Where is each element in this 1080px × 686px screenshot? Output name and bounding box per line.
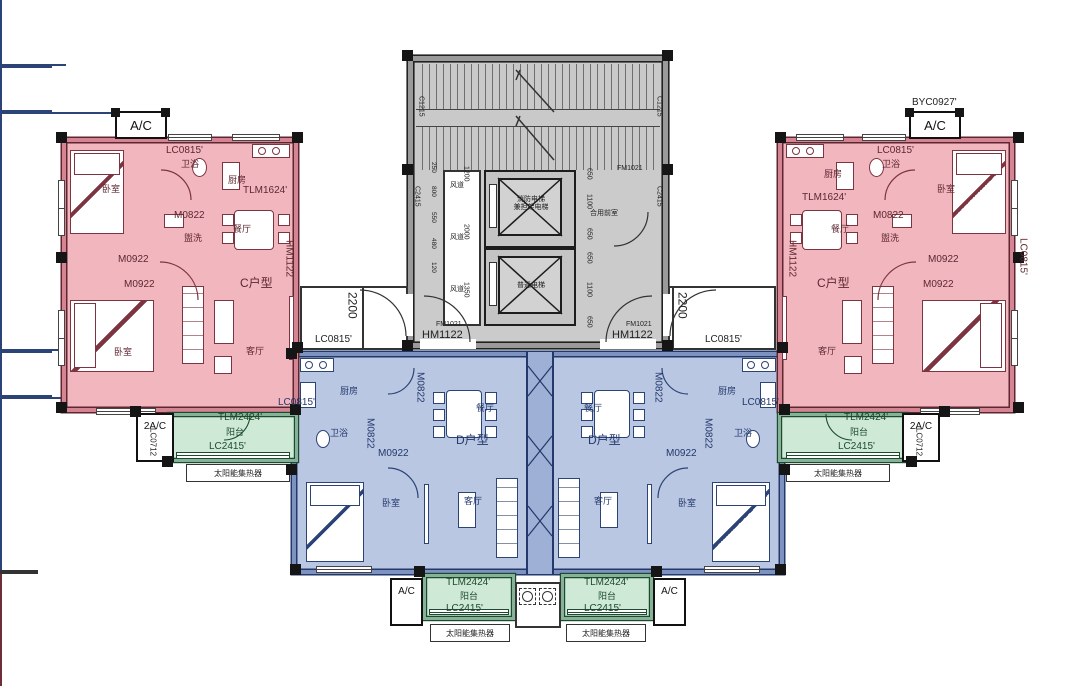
door-code-label: M0822 [174,211,205,222]
room-label-living: 客厅 [464,497,482,506]
room-label-wash: 盥洗 [184,234,202,243]
water-tank-drum [522,591,533,602]
room-label-living: 客厅 [246,347,264,356]
dimension-label: 550 [429,212,436,223]
column [905,108,914,117]
column [651,566,662,577]
pillow [716,485,766,506]
wall [0,399,2,506]
column [402,340,413,351]
room-label-dining: 餐厅 [831,225,849,234]
room-label-bedroom: 卧室 [937,185,955,194]
pillow [74,153,120,175]
dimension-label: 2200 [676,292,689,319]
wall [0,66,52,68]
room-label-wash: 盥洗 [881,234,899,243]
solar-collector: 太阳能集热器 [786,464,890,482]
pillow [74,303,96,368]
dimension-label: 1350 [462,282,469,298]
column [56,252,67,263]
wall [0,353,2,395]
wall [0,574,2,686]
dimension-label: 2000 [462,224,469,240]
window [796,134,844,141]
room-label-bedroom: 卧室 [382,499,400,508]
dimension-label: 1100 [585,194,592,209]
room-label-bedroom: 卧室 [102,185,120,194]
room-label-dining: 餐厅 [476,404,494,413]
column [1013,402,1024,413]
dimension-label: 650 [585,252,592,264]
wall [0,112,124,114]
room-label-bath: 卫浴 [734,429,752,438]
door-code-label: M0822 [414,372,425,403]
column [775,564,786,575]
chair [790,214,802,226]
pillow [956,153,1002,175]
column [286,464,297,475]
window [58,310,65,366]
window [316,566,372,573]
window-code-label: LC2415' [446,604,483,615]
door-code-label: M0822 [702,418,713,449]
room-label-lobby: 合用前室 [590,210,618,217]
door-code-label: HM1122 [422,330,463,342]
window-code-label: LC2415' [838,442,875,453]
water-tank-drum [542,591,553,602]
room-label-dining: 餐厅 [584,404,602,413]
window-code-label: LC0815' [877,146,914,157]
door-code-label: HM1122 [612,330,653,342]
window-code-label: C2415 [655,186,662,207]
elevator-label: 兼担架电梯 [512,204,550,211]
pillow [980,303,1002,368]
column [777,342,788,353]
sink-bowl [806,147,814,155]
room-label-bath: 卫浴 [330,429,348,438]
unit-type-label: C户型 [240,277,273,290]
door-code-label: TLM2424' [446,578,490,589]
dimension-line [362,288,364,350]
unit-type-label: D户型 [456,434,489,447]
chair [633,409,645,421]
window-code-label: LC2415' [584,604,621,615]
window [58,180,65,236]
elevator-label: 普通电梯 [516,282,546,289]
dimension-label: 1100 [585,282,592,297]
door-code-label: M0922 [666,449,697,460]
balcony-window [786,452,900,459]
armchair [844,356,862,374]
window [1011,310,1018,366]
chair [433,392,445,404]
sofa [496,478,518,558]
column [662,164,673,175]
wall [0,0,2,64]
solar-collector: 太阳能集热器 [430,624,510,642]
door-code-label: M0822 [873,211,904,222]
dimension-label: 2200 [346,292,359,319]
room-label-kitchen: 厨房 [718,387,736,396]
door-code-label: FM1021 [626,321,652,328]
room-label-bath: 卫浴 [181,160,199,169]
room-label-bedroom: 卧室 [678,499,696,508]
dimension-label: 650 [585,316,592,328]
door-code-label: M0822 [364,418,375,449]
floor-plan-canvas: A/C A/C 太阳能集热器 2A/C 太阳能集热器 2A/C 太阳能集热器 太… [0,0,1080,686]
room-label-bath: 卫浴 [882,160,900,169]
room-label-living: 客厅 [594,497,612,506]
elevator-label: 消防电梯 [516,196,546,203]
chair [278,214,290,226]
bed [922,300,1006,372]
sink-bowl [319,361,327,369]
door-code-label: M0822 [652,372,663,403]
door-code-label: TLM1624' [802,193,846,204]
wall [0,285,2,349]
ac-platform-top-right: A/C [909,111,961,139]
column [1013,132,1024,143]
column [402,50,413,61]
window [704,566,760,573]
column [662,340,673,351]
room-label-kitchen: 厨房 [340,387,358,396]
unit-type-label: D户型 [588,434,621,447]
column [775,132,786,143]
door-code-label: M0922 [118,255,149,266]
room-label-balcony: 阳台 [598,592,616,601]
wall [0,114,2,221]
coffee-table [214,300,234,344]
door-code-label: HM1122 [786,240,797,277]
dimension-label: 120 [429,262,436,273]
column [56,132,67,143]
ac-platform-top-left: A/C [115,111,167,139]
door-code-label: TLM2424' [218,413,262,424]
bed [70,300,154,372]
staircase [416,64,660,170]
wall [0,221,2,285]
duct-shafts [443,170,481,326]
sink-bowl [272,147,280,155]
sofa [558,478,580,558]
window-code-label: LC0712 [148,428,156,456]
door-code-label: M0922 [378,449,409,460]
armchair [214,356,232,374]
column [56,402,67,413]
ac-platform-bottom-right: A/C [653,578,686,626]
window-code-label: BYC0927' [912,98,957,109]
door-code-label: FM1021 [436,321,462,328]
sink-bowl [305,361,313,369]
door-code-label: FM1021 [617,165,643,172]
room-label-kitchen: 厨房 [824,170,842,179]
wall [0,351,52,353]
column [292,132,303,143]
wall [0,572,38,574]
balcony-window [176,452,290,459]
door-opening [404,294,413,336]
column [130,406,141,417]
dining-table [446,390,482,438]
window-code-label: LC2415' [209,442,246,453]
party-wall-shaft [526,352,554,574]
room-label-balcony: 阳台 [850,428,868,437]
dimension-label: 1200 [462,166,469,182]
window-code-label: LC0815' [1017,238,1028,275]
dining-table [594,390,630,438]
sofa [872,286,894,364]
door-code-label: M0922 [124,280,155,291]
chair [633,426,645,438]
column [290,564,301,575]
window-code-label: C1215 [417,96,424,117]
window-code-label: C1215 [655,96,662,117]
toilet [316,430,330,448]
sink-bowl [258,147,266,155]
column [779,464,790,475]
door-code-label: HM1122 [283,240,294,277]
unit-type-label: C户型 [817,277,850,290]
wall [0,506,2,570]
solar-collector: 太阳能集热器 [566,624,646,642]
stair-landing [416,109,660,127]
dimension-label: 650 [585,168,592,180]
solar-collector: 太阳能集热器 [186,464,290,482]
tv-cabinet [424,484,429,544]
room-label-balcony: 阳台 [460,592,478,601]
door-code-label: M0922 [928,255,959,266]
room-label-dining: 餐厅 [233,225,251,234]
column [111,108,120,117]
column [779,404,790,415]
coffee-table [842,300,862,344]
sink-bowl [792,147,800,155]
dimension-label: 650 [585,228,592,240]
window-code-label: LC0712 [914,428,922,456]
door-code-label: TLM2424' [584,578,628,589]
column [414,566,425,577]
ac-platform-bottom-left: A/C [390,578,423,626]
bed [712,482,770,562]
dimension-label: 250 [429,162,436,173]
window-code-label: LC0815' [166,146,203,157]
room-label-living: 客厅 [818,347,836,356]
chair [433,409,445,421]
window [232,134,280,141]
room-label-balcony: 阳台 [226,428,244,437]
room-label-bedroom: 卧室 [114,348,132,357]
column [162,456,173,467]
window [168,134,212,141]
door-opening [663,294,672,336]
elevator-counterweight [489,184,497,228]
chair [433,426,445,438]
door-code-label: M0922 [923,280,954,291]
window-code-label: LC0815' [315,335,352,346]
door-code-label: TLM2424' [844,413,888,424]
sink-bowl [761,361,769,369]
column [286,348,297,359]
door-code-label: TLM1624' [243,186,287,197]
sink-bowl [747,361,755,369]
window-code-label: LC0815' [705,335,742,346]
chair [633,392,645,404]
sofa [182,286,204,364]
pillow [310,485,360,506]
wall [0,68,2,110]
dimension-label: 480 [429,238,436,249]
window-code-label: LC0815' [278,398,315,409]
column [955,108,964,117]
duct-label: 风道 [450,182,464,189]
column [161,108,170,117]
bed [952,150,1006,234]
window-code-label: C2415 [413,186,420,207]
column [402,164,413,175]
tv-cabinet [647,484,652,544]
bed [306,482,364,562]
column [662,50,673,61]
dimension-label: 800 [429,186,436,197]
column [939,406,950,417]
window [862,134,906,141]
window [1011,180,1018,236]
window-code-label: LC0815' [742,398,779,409]
elevator-counterweight [489,262,497,306]
column [906,456,917,467]
